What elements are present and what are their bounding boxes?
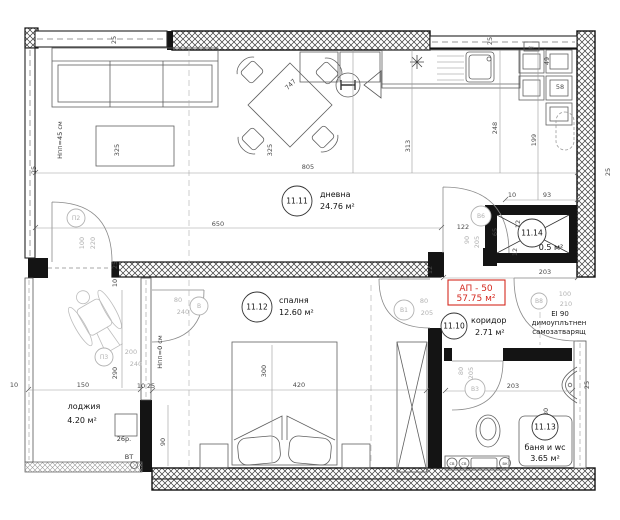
kitchen-sink — [437, 52, 494, 82]
room-area-label: 2.71 м² — [475, 328, 505, 337]
dimension-label: 25 — [111, 261, 119, 269]
door-size-label: 205 — [467, 367, 475, 379]
dimension-label: 12 — [511, 248, 519, 256]
dimension-label: 25 — [147, 382, 155, 390]
room-name-label: баня и wc — [524, 443, 565, 452]
floor-level-living: Hпп=45 см — [56, 121, 64, 159]
water-meter-1: св — [449, 462, 454, 467]
wall-loggia-bedroom-lower — [140, 400, 152, 472]
dimension-label: 325 — [266, 144, 274, 156]
dimension-label: 122 — [457, 223, 469, 231]
dimension-label: 25 — [110, 36, 118, 44]
dimension-label: 25 — [583, 381, 591, 389]
fire-rating-line3: самозатварящ — [532, 328, 586, 336]
dimension-label: 325 — [113, 144, 121, 156]
dimension-label: 420 — [293, 381, 305, 389]
door-size-label: 80 — [457, 367, 465, 375]
door-size-label: 205 — [473, 236, 481, 248]
dimension-label: 12 — [426, 266, 434, 274]
water-meter-2: св — [461, 462, 466, 467]
door-letter-П3: П3 — [100, 354, 109, 361]
door-letter-В6: В6 — [477, 213, 485, 220]
wall-bath-top — [503, 348, 572, 361]
window-cap-top — [167, 31, 173, 50]
wall-bath-top-left-cap — [444, 348, 452, 361]
door-letter-В: В — [197, 303, 201, 310]
toilet — [476, 415, 500, 447]
bed — [232, 342, 337, 466]
room-area-label: 12.60 м² — [279, 308, 314, 317]
nightstand-left — [200, 444, 228, 468]
fire-rating-line1: EI 90 — [551, 310, 569, 318]
floor-plan: 2525252525108056507473253253132481994958… — [0, 0, 620, 520]
dimension-label: 65 — [491, 228, 499, 236]
door-size-label: 220 — [89, 237, 97, 249]
door-size-label: 205 — [421, 309, 433, 317]
sofa — [52, 48, 218, 107]
water-column-bath: вк — [502, 462, 508, 467]
dimension-label: 203 — [507, 382, 519, 390]
dimension-label: 90 — [159, 438, 167, 446]
water-column-kitchen: вк — [528, 46, 534, 51]
room-area-label: 24.76 м² — [320, 202, 355, 211]
door-size-label: 100 — [78, 237, 86, 249]
apartment-number: АП - 50 — [459, 284, 493, 294]
door-letter-В3: В3 — [471, 386, 479, 393]
dimension-label: 650 — [212, 220, 224, 228]
dimension-label: 313 — [404, 140, 412, 152]
room-name-label: дневна — [320, 190, 351, 199]
wardrobe — [397, 342, 427, 472]
room-area-label: 3.65 м² — [530, 454, 560, 463]
door-letter-П2: П2 — [72, 215, 81, 222]
section-mark-icon — [336, 71, 381, 98]
dimension-label: 300 — [260, 365, 268, 377]
wall-top-hatched — [172, 31, 430, 50]
fire-rating-line2: димоуплътнен — [532, 319, 587, 327]
dining-chair-1 — [233, 53, 266, 86]
dimension-label: 248 — [491, 122, 499, 134]
dimension-label: 10 — [508, 191, 516, 199]
nightstand-right — [342, 444, 370, 468]
door-letter-В1: В1 — [400, 307, 408, 314]
dining-chair-4 — [309, 123, 342, 156]
apartment-area: 57.75 м² — [456, 294, 495, 304]
dimension-label: 203 — [539, 268, 551, 276]
door-size-label: 80 — [420, 297, 428, 305]
column-left — [28, 258, 48, 278]
dimension-label: 199 — [530, 134, 538, 146]
dimension-label: 93 — [543, 191, 551, 199]
wheelchair-icon — [61, 281, 132, 361]
door-size-label: 240 — [177, 308, 189, 316]
door-size-label: 100 — [559, 290, 571, 298]
room-id-label: 11.13 — [534, 423, 556, 432]
coffee-table — [96, 126, 174, 166]
room-id-label: 11.11 — [286, 197, 308, 206]
dining-chair-3 — [234, 125, 267, 158]
dimension-label: 10 — [10, 381, 18, 389]
room-name-label: спалня — [279, 296, 309, 305]
door-size-label: 90 — [463, 236, 471, 244]
apartment-tag: АП - 50 57.75 м² — [448, 280, 505, 305]
dining-table — [248, 63, 332, 147]
door-size-label: 200 — [125, 348, 137, 356]
dimension-label: 290 — [111, 367, 119, 379]
wall-right-hatched — [577, 31, 595, 277]
dimension-label: 49 — [543, 57, 551, 65]
parapet-loggia-bottom — [25, 462, 142, 472]
dimension-label: 58 — [556, 83, 564, 91]
door-size-label: 80 — [174, 296, 182, 304]
riser-label: 26р. — [117, 435, 131, 443]
wall-shaft-step — [483, 248, 497, 266]
vent-pipe-label: ВТ — [125, 453, 133, 461]
windows — [25, 31, 586, 468]
room-id-label: 11.10 — [443, 322, 465, 331]
walls — [25, 28, 595, 490]
dimension-label: 25 — [486, 37, 494, 45]
dimension-label: 25 — [604, 168, 612, 176]
floor-level-loggia: Hпп=0 см — [156, 335, 164, 369]
room-id-label: 11.12 — [246, 303, 268, 312]
boiler-icon — [556, 112, 574, 150]
dimension-label: 10 — [137, 382, 145, 390]
door-letter-В8: В8 — [535, 298, 543, 305]
floor-plan-drawing: 2525252525108056507473253253132481994958… — [0, 0, 620, 520]
wall-interior-living-bedroom — [112, 262, 441, 277]
door-size-label: 240 — [130, 360, 142, 368]
wall-bedroom-corridor — [428, 328, 442, 468]
dimension-label: 805 — [302, 163, 314, 171]
room-id-label: 11.14 — [521, 229, 543, 238]
room-name-label: лоджия — [68, 402, 101, 411]
dimension-label: 150 — [77, 381, 89, 389]
dimension-label: 25 — [30, 166, 38, 174]
room-name-label: коридор — [471, 316, 507, 325]
dimension-label: 747 — [283, 77, 297, 91]
dimension-label: 10 — [111, 279, 119, 287]
room-area-label: 0.5 м² — [539, 243, 564, 252]
door-size-label: 210 — [560, 300, 572, 308]
room-area-label: 4.20 м² — [67, 416, 97, 425]
